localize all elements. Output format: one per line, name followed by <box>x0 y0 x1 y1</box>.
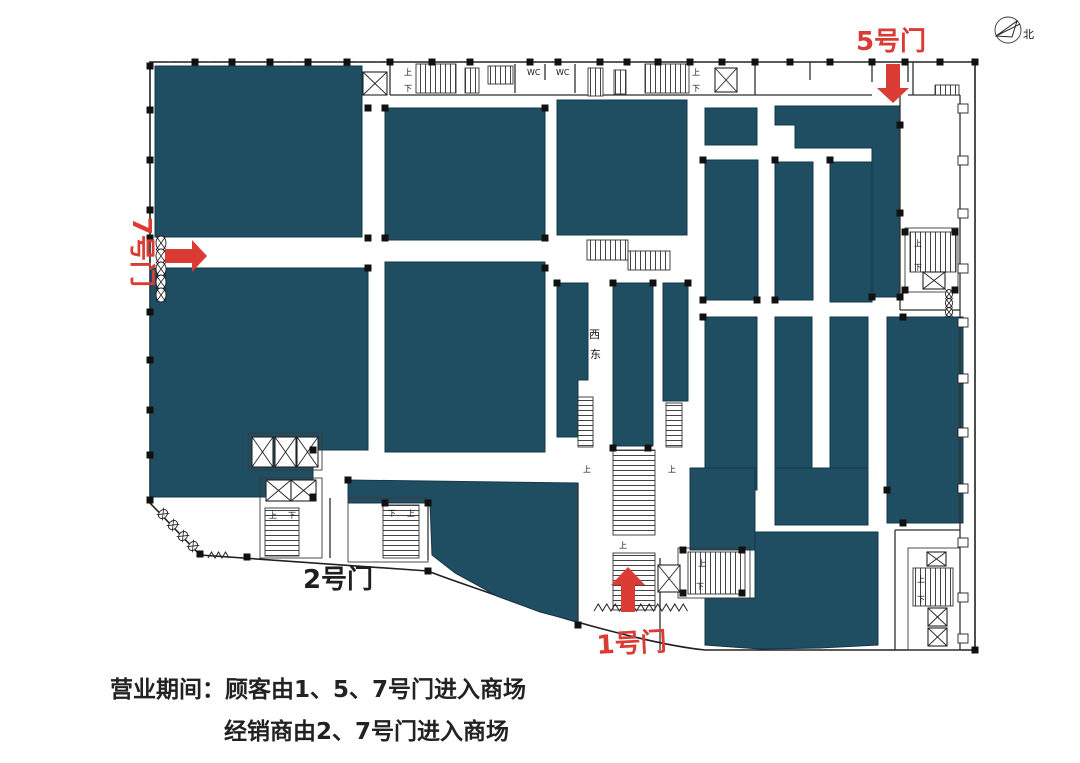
column-marker <box>884 487 891 494</box>
column-marker <box>958 593 968 602</box>
column-marker <box>244 554 251 561</box>
column-marker <box>700 157 707 164</box>
retail-block <box>155 66 362 237</box>
column-marker <box>365 105 372 112</box>
svg-text:上: 上 <box>914 239 922 248</box>
elevator-icon <box>927 552 946 566</box>
floorplan-svg: 5号门 7号门 2号门 1号门 西 东 WC WC 上 下 上 下 上 下 上 … <box>0 0 1080 763</box>
column-marker <box>527 59 534 66</box>
svg-text:下: 下 <box>917 595 925 604</box>
retail-block <box>557 100 687 235</box>
retail-block <box>385 108 545 240</box>
svg-text:下: 下 <box>692 84 700 93</box>
column-marker <box>687 59 694 66</box>
column-marker <box>310 447 317 454</box>
column-marker <box>958 428 968 437</box>
revolving-door-icon <box>156 249 166 263</box>
retail-block <box>663 283 688 401</box>
elevator-icon <box>252 437 273 467</box>
column-marker <box>680 590 687 597</box>
compass: 北 <box>995 17 1034 43</box>
column-marker <box>365 265 372 272</box>
column-marker <box>958 264 968 273</box>
revolving-door-icon <box>156 236 166 250</box>
compass-label: 北 <box>1023 28 1034 41</box>
column-marker <box>597 59 604 66</box>
column-marker <box>344 59 351 66</box>
stairs-icon <box>613 450 655 535</box>
revolving-door-icon <box>156 275 166 289</box>
retail-block <box>705 160 758 300</box>
column-marker <box>972 647 979 654</box>
door7-arrow-icon <box>165 240 207 272</box>
wc-label: WC <box>556 68 570 77</box>
stairs-icon <box>935 85 959 95</box>
column-marker <box>542 105 549 112</box>
stairs-icon <box>645 64 689 93</box>
svg-text:下: 下 <box>288 511 296 520</box>
door5-arrow-icon <box>877 64 909 103</box>
column-marker <box>772 157 779 164</box>
column-marker <box>958 209 968 218</box>
column-marker <box>229 59 236 66</box>
elevator-icon <box>923 272 945 289</box>
column-marker <box>700 297 707 304</box>
column-marker <box>425 500 432 507</box>
column-marker <box>952 287 959 294</box>
retail-block <box>775 317 812 490</box>
column-marker <box>739 590 746 597</box>
column-marker <box>645 445 652 452</box>
column-marker <box>197 551 204 558</box>
column-marker <box>700 314 707 321</box>
elevator-icon <box>275 437 296 467</box>
column-marker <box>147 207 154 214</box>
elevator-icon <box>658 565 680 592</box>
column-marker <box>787 59 794 66</box>
column-marker <box>267 59 274 66</box>
column-marker <box>305 59 312 66</box>
column-marker <box>869 294 876 301</box>
retail-block <box>705 317 757 490</box>
column-marker <box>425 568 432 575</box>
notice-line-2: 经销商由2、7号门进入商场 <box>224 718 509 745</box>
column-marker <box>897 122 904 129</box>
retail-blocks <box>150 66 963 649</box>
notice-line-1: 营业期间：顾客由1、5、7号门进入商场 <box>110 676 526 703</box>
retail-block <box>887 317 963 523</box>
column-marker <box>754 297 761 304</box>
column-marker <box>897 294 904 301</box>
revolving-door-icon <box>156 288 166 302</box>
column-marker <box>958 156 968 165</box>
stairs-icon <box>588 68 603 96</box>
column-marker <box>958 374 968 383</box>
column-marker <box>902 287 909 294</box>
column-marker <box>719 59 726 66</box>
column-marker <box>902 229 909 236</box>
column-marker <box>902 59 909 66</box>
retail-block <box>775 468 868 525</box>
svg-text:下: 下 <box>404 84 412 93</box>
svg-text:下: 下 <box>388 509 396 518</box>
column-marker <box>382 500 389 507</box>
elevator-icon <box>715 68 737 92</box>
floorplan-page: 5号门 7号门 2号门 1号门 西 东 WC WC 上 下 上 下 上 下 上 … <box>0 0 1080 763</box>
column-marker <box>958 634 968 643</box>
column-marker <box>575 622 582 629</box>
stairs-icon <box>614 70 626 94</box>
column-marker <box>958 484 968 493</box>
column-marker <box>387 59 394 66</box>
column-marker <box>542 235 549 242</box>
retail-block <box>705 108 757 145</box>
column-marker <box>869 59 876 66</box>
west-label: 西 <box>589 328 600 341</box>
revolving-door-icon <box>167 519 180 532</box>
door5-label: 5号门 <box>856 27 926 57</box>
column-marker <box>192 59 199 66</box>
svg-text:上: 上 <box>269 511 277 520</box>
column-marker <box>610 445 617 452</box>
revolving-door-icon <box>187 540 200 553</box>
column-marker <box>827 157 834 164</box>
column-marker <box>772 297 779 304</box>
retail-block <box>690 468 755 550</box>
column-marker <box>650 280 657 287</box>
retail-block <box>775 162 813 300</box>
column-marker <box>680 547 687 554</box>
stairs-icon <box>578 397 593 447</box>
column-marker <box>147 157 154 164</box>
door7-label: 7号门 <box>126 217 156 287</box>
column-marker <box>937 59 944 66</box>
stairs-icon <box>666 403 682 447</box>
revolving-door-icon <box>946 290 953 299</box>
column-marker <box>555 59 562 66</box>
column-marker <box>900 314 907 321</box>
retail-block <box>613 283 653 446</box>
elevator-icon <box>363 72 387 95</box>
elevator-icon <box>928 628 947 646</box>
column-marker <box>952 229 959 236</box>
door2-label: 2号门 <box>303 565 373 595</box>
column-marker <box>752 59 759 66</box>
column-marker <box>739 547 746 554</box>
svg-text:上: 上 <box>668 465 676 474</box>
column-marker <box>147 357 154 364</box>
svg-text:下: 下 <box>914 263 922 272</box>
column-marker <box>624 59 631 66</box>
column-marker <box>147 309 154 316</box>
svg-text:上: 上 <box>407 509 415 518</box>
column-marker <box>972 59 979 66</box>
column-marker <box>554 280 561 287</box>
column-marker <box>897 210 904 217</box>
revolving-door-icon <box>946 299 953 308</box>
east-label: 东 <box>590 348 601 361</box>
column-marker <box>685 280 692 287</box>
revolving-door-icon <box>946 308 953 317</box>
svg-text:上: 上 <box>583 465 591 474</box>
svg-text:上: 上 <box>404 68 412 77</box>
column-marker <box>382 235 389 242</box>
svg-text:下: 下 <box>696 582 704 591</box>
stairs-icon <box>488 66 513 84</box>
elevator-icon <box>928 608 947 626</box>
column-marker <box>365 235 372 242</box>
stairs-icon <box>465 68 479 93</box>
stairs-icon <box>416 64 456 93</box>
column-marker <box>429 59 436 66</box>
elevator-icon <box>266 480 291 501</box>
revolving-door-icon <box>157 508 170 521</box>
column-marker <box>147 452 154 459</box>
retail-block <box>830 317 868 490</box>
column-marker <box>610 280 617 287</box>
revolving-door-icon <box>156 262 166 276</box>
column-marker <box>382 105 389 112</box>
column-marker <box>310 494 317 501</box>
column-marker <box>147 497 154 504</box>
door1-label: 1号门 <box>596 627 668 661</box>
column-marker <box>900 520 907 527</box>
svg-text:上: 上 <box>917 575 925 584</box>
svg-text:上: 上 <box>619 541 627 550</box>
stairs-icon <box>587 240 628 260</box>
column-marker <box>542 265 549 272</box>
column-marker <box>958 318 968 327</box>
column-marker <box>147 407 154 414</box>
column-marker <box>655 59 662 66</box>
wc-label: WC <box>527 68 541 77</box>
column-marker <box>958 104 968 113</box>
stairs-icon <box>628 251 670 270</box>
column-marker <box>345 477 352 484</box>
retail-block <box>830 162 872 302</box>
column-marker <box>147 63 154 70</box>
retail-block <box>385 262 545 452</box>
column-marker <box>958 538 968 547</box>
column-marker <box>147 107 154 114</box>
column-marker <box>827 59 834 66</box>
column-marker <box>467 59 474 66</box>
svg-text:上: 上 <box>698 559 706 568</box>
svg-text:上: 上 <box>692 68 700 77</box>
